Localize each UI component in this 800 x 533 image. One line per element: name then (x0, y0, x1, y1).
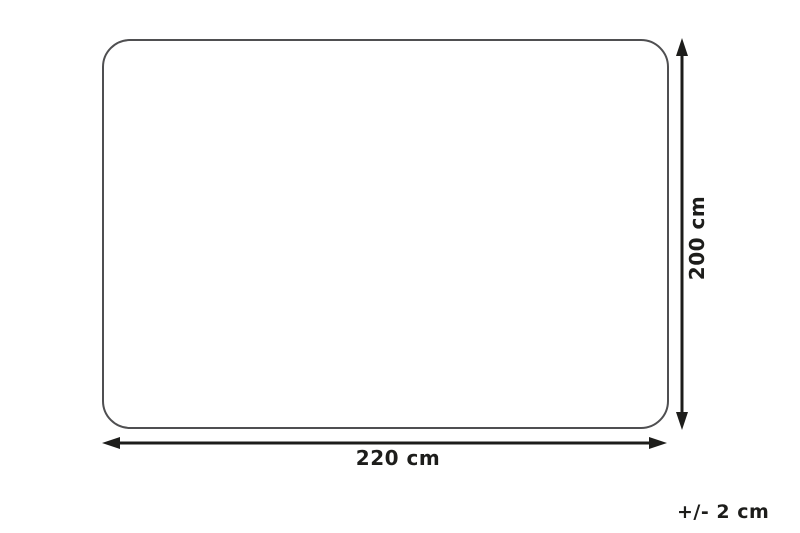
dimension-diagram: 220 cm 200 cm +/- 2 cm (0, 0, 800, 533)
arrow-down-icon (676, 412, 688, 430)
product-outline (103, 40, 668, 428)
arrow-left-icon (102, 437, 120, 449)
tolerance-label: +/- 2 cm (677, 503, 769, 522)
arrow-right-icon (649, 437, 667, 449)
height-label: 200 cm (687, 196, 707, 280)
arrow-up-icon (676, 38, 688, 56)
width-label: 220 cm (328, 448, 468, 468)
